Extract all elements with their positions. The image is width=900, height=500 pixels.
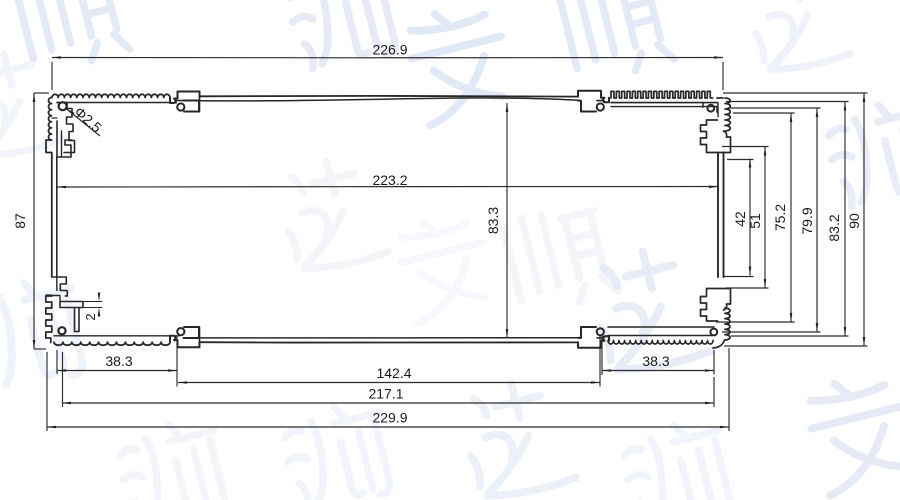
svg-text:229.9: 229.9 <box>372 410 407 426</box>
svg-text:142.4: 142.4 <box>376 365 411 381</box>
svg-text:38.3: 38.3 <box>642 353 669 369</box>
svg-text:38.3: 38.3 <box>105 353 132 369</box>
svg-text:90: 90 <box>846 213 862 229</box>
svg-text:42: 42 <box>732 211 748 227</box>
svg-text:223.2: 223.2 <box>372 172 407 188</box>
svg-text:226.9: 226.9 <box>372 42 407 58</box>
svg-text:51: 51 <box>747 213 763 229</box>
svg-text:2: 2 <box>83 313 98 320</box>
svg-text:87: 87 <box>12 213 28 229</box>
svg-text:83.2: 83.2 <box>826 214 842 241</box>
svg-text:217.1: 217.1 <box>368 386 403 402</box>
svg-text:83.3: 83.3 <box>485 207 501 234</box>
svg-text:75.2: 75.2 <box>772 204 788 231</box>
svg-text:79.9: 79.9 <box>799 207 815 234</box>
